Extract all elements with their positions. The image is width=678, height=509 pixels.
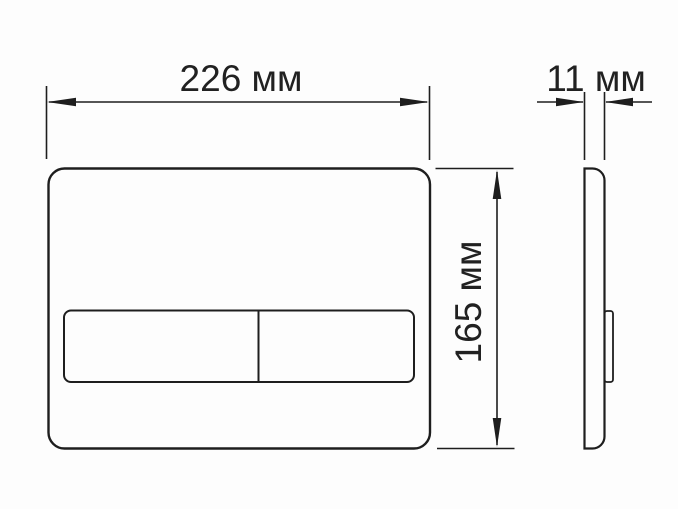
side-view-profile-outline: [585, 169, 605, 449]
height-dimension-label: 165 мм: [448, 241, 489, 364]
front-view-plate-outline: [49, 169, 431, 449]
width-arrow-right-icon: [400, 98, 429, 107]
side-view-button-protrusion: [605, 311, 614, 382]
depth-dimension-label: 11 мм: [546, 58, 646, 99]
side-view: [585, 169, 614, 449]
height-arrow-down-icon: [493, 418, 502, 447]
width-dimension: 226 мм: [47, 58, 430, 160]
front-view: [49, 169, 431, 449]
height-dimension: 165 мм: [436, 169, 515, 449]
technical-drawing-canvas: 226 мм 165 мм 11 мм: [0, 0, 678, 509]
height-arrow-up-icon: [493, 170, 502, 199]
flush-plate-dimension-diagram: 226 мм 165 мм 11 мм: [0, 0, 678, 509]
depth-dimension: 11 мм: [537, 58, 652, 160]
width-dimension-label: 226 мм: [180, 58, 303, 99]
width-arrow-left-icon: [47, 98, 76, 107]
